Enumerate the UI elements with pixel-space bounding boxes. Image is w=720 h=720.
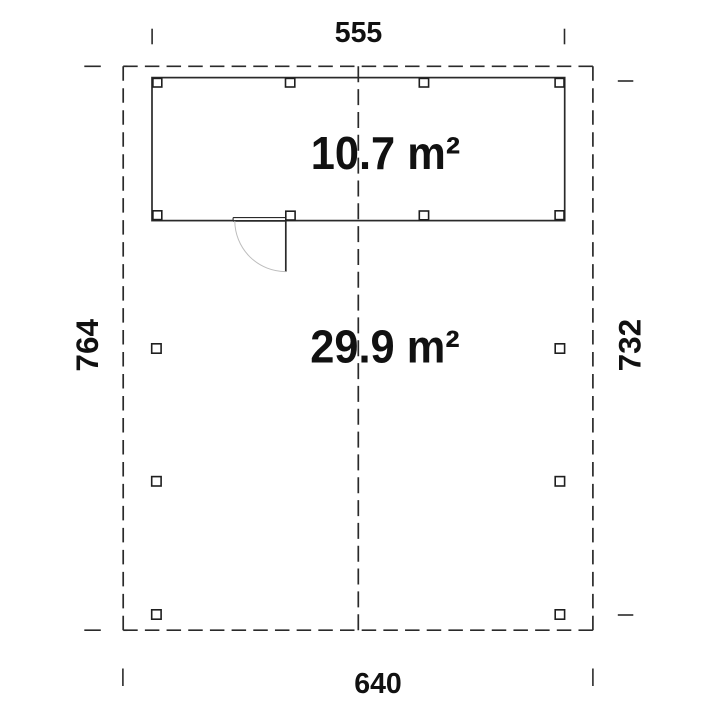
svg-text:764: 764 <box>69 319 105 372</box>
svg-text:10.7 m²: 10.7 m² <box>311 127 461 179</box>
svg-text:29.9 m²: 29.9 m² <box>310 320 460 372</box>
svg-text:555: 555 <box>335 17 383 49</box>
svg-text:640: 640 <box>354 668 402 700</box>
svg-text:732: 732 <box>612 319 648 372</box>
